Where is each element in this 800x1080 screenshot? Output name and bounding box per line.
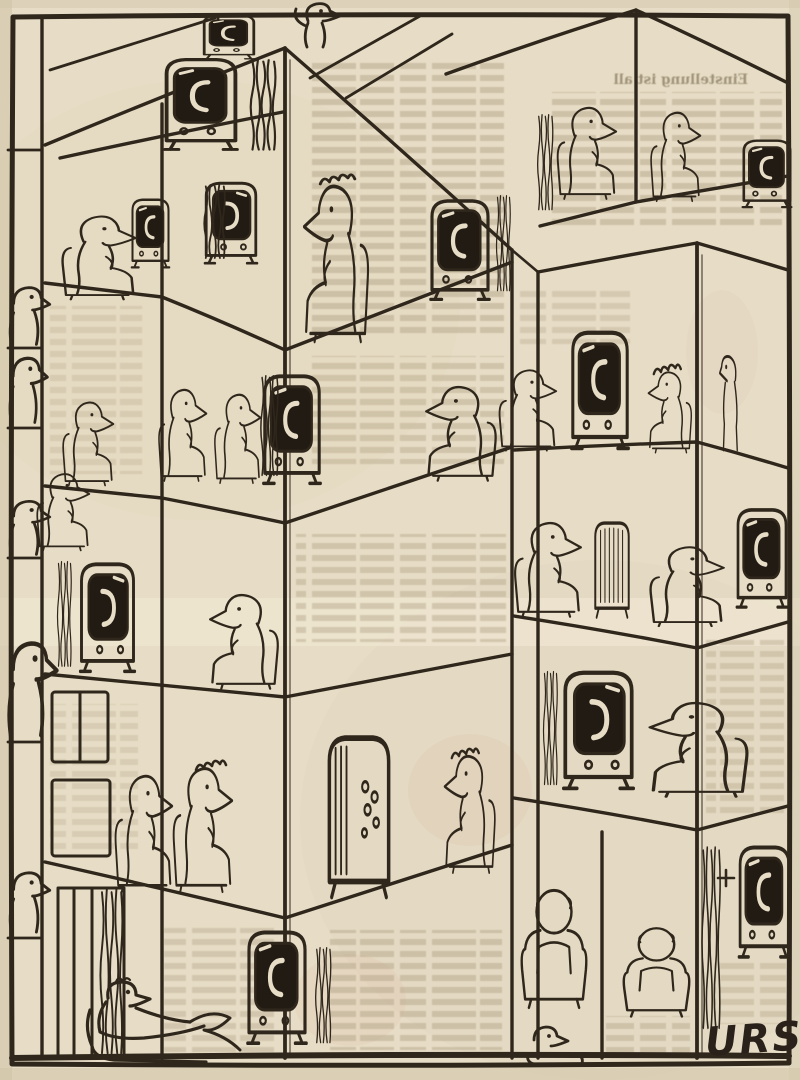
mirrored-headline: Einstellung ist all bbox=[614, 72, 748, 88]
bleed-headline-text: Einstellung ist all bbox=[614, 72, 748, 88]
cartoon-canvas: Einstellung ist all bbox=[0, 0, 800, 1080]
artist-signature: URS bbox=[703, 1013, 800, 1066]
cartoon-scan: Einstellung ist all bbox=[0, 0, 800, 1080]
